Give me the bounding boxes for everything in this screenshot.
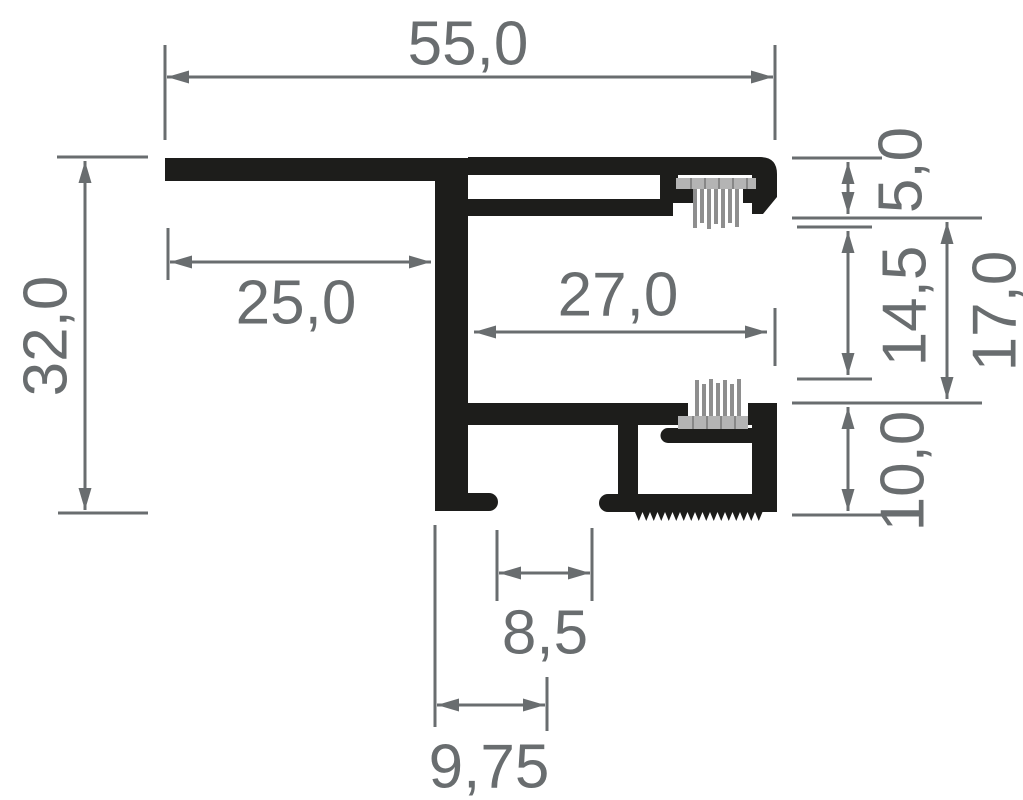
dim-label-foot-offset: 9,75 <box>429 732 550 800</box>
dim-label-top-lip: 5,0 <box>866 127 935 213</box>
profile-middle-bar <box>468 199 673 216</box>
dim-label-foot-gap: 8,5 <box>502 598 588 667</box>
profile-box-floor <box>599 494 777 512</box>
top-brush-holder-right <box>743 188 762 203</box>
dim-foot-gap <box>497 528 592 601</box>
dim-label-channel-width: 27,0 <box>558 260 679 329</box>
dim-label-slot-height: 14,5 <box>870 246 939 367</box>
top-brush-strands <box>693 189 739 229</box>
top-brush-seal <box>676 178 756 229</box>
bottom-brush-strands <box>695 379 741 416</box>
profile-web <box>435 158 468 511</box>
dim-label-total-height: 32,0 <box>11 276 80 397</box>
profile-channel-bar-left <box>435 403 688 425</box>
profile-box-left-wall <box>618 425 638 497</box>
profile-top-left-flange <box>165 158 468 181</box>
profile-cross-section-drawing: 55,0 25,0 27,0 32,0 5,0 14,5 17,0 10,0 8… <box>0 0 1023 800</box>
profile-outline <box>165 157 777 521</box>
dim-slot-height <box>797 227 872 379</box>
dim-label-total-width: 55,0 <box>408 9 529 78</box>
top-brush-backing <box>676 178 756 189</box>
dim-label-left-flange: 25,0 <box>236 268 357 337</box>
technical-drawing-page: 55,0 25,0 27,0 32,0 5,0 14,5 17,0 10,0 8… <box>0 0 1023 800</box>
profile-left-foot <box>435 493 498 511</box>
bottom-brush-backing <box>678 416 748 429</box>
bottom-brush-seal <box>678 379 748 429</box>
profile-serration <box>635 512 763 521</box>
dim-label-base-height: 10,0 <box>868 411 937 532</box>
dim-label-right-height: 17,0 <box>960 251 1023 372</box>
bottom-brush-shelf <box>661 428 757 443</box>
